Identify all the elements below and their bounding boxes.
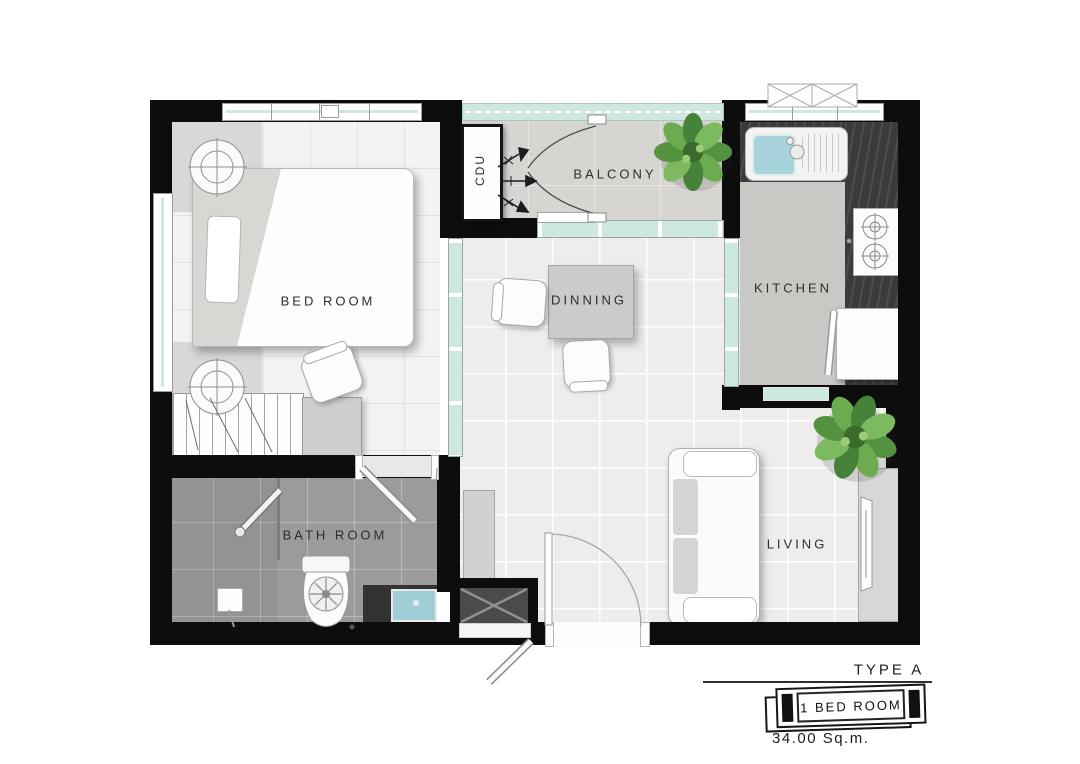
sofa-cushion: [673, 538, 698, 594]
wall-bathroom-east: [437, 455, 460, 592]
wall-bedroom-balcony: [440, 100, 462, 238]
kitchen-pass-window: [763, 387, 829, 401]
bedroom-sliding-glass-door: [448, 238, 463, 457]
dining-chair: [562, 339, 611, 389]
door-jamb: [545, 622, 554, 647]
double-bed: [192, 168, 414, 347]
sofa-armrest: [683, 451, 757, 477]
drainboard: [802, 134, 842, 172]
refrigerator: [836, 308, 899, 380]
sofa-cushion: [673, 479, 698, 535]
title-underline: [703, 681, 932, 683]
door-jamb: [640, 622, 650, 647]
badge-label: 1 BED ROOM: [796, 689, 905, 722]
cdu-label: CDU: [473, 154, 487, 186]
unit-badge: 1 BED ROOM: [769, 684, 924, 733]
bedroom-side-window: [153, 193, 173, 392]
wall-living-ne: [886, 385, 920, 468]
wardrobe: [172, 393, 304, 459]
service-shaft: [460, 588, 528, 623]
room-label-kitchen: KITCHEN: [754, 281, 832, 296]
sofa: [668, 448, 760, 626]
door-jamb: [355, 455, 363, 480]
area-label: 34.00 Sq.m.: [772, 730, 869, 747]
kitchen-sink: [745, 127, 848, 181]
room-label-bathroom: BATH ROOM: [283, 528, 388, 543]
sliding-panel: [537, 212, 594, 223]
bathroom-opening: [361, 456, 431, 477]
floor-plan: BED ROOM BALCONY KITCHEN DINNING BATH RO…: [0, 0, 1080, 764]
room-label-balcony: BALCONY: [573, 167, 656, 182]
kitchen-glass-partition: [724, 238, 739, 387]
vanity-counter: [363, 585, 437, 622]
kitchen-window: [745, 103, 884, 121]
sink-basin: [752, 134, 796, 176]
bedroom-window: [222, 103, 422, 121]
hall-cabinet: [463, 490, 495, 589]
soap-shelf: [217, 588, 243, 612]
wall-right: [898, 100, 920, 645]
gas-stove: [853, 208, 900, 276]
vanity-sink: [391, 589, 437, 622]
entry-opening: [552, 622, 640, 645]
dining-chair: [494, 277, 547, 327]
room-label-bedroom: BED ROOM: [281, 294, 376, 309]
badge-cap-right: [908, 690, 920, 718]
sofa-armrest: [683, 597, 757, 623]
wall-kitchen-west: [722, 100, 740, 238]
door-jamb: [431, 455, 439, 480]
window-detail: [321, 105, 339, 118]
shaft-sill: [459, 623, 531, 638]
badge-frame: 1 BED ROOM: [775, 684, 926, 729]
tv-console: [858, 468, 900, 622]
type-label: TYPE A: [854, 662, 925, 679]
badge-cap-left: [782, 694, 794, 722]
balcony-glass-railing: [462, 103, 724, 121]
shower-partition: [277, 478, 280, 560]
room-label-living: LIVING: [767, 537, 828, 552]
dresser: [302, 397, 362, 459]
room-label-dining: DINNING: [551, 293, 627, 308]
pillow: [204, 215, 241, 303]
